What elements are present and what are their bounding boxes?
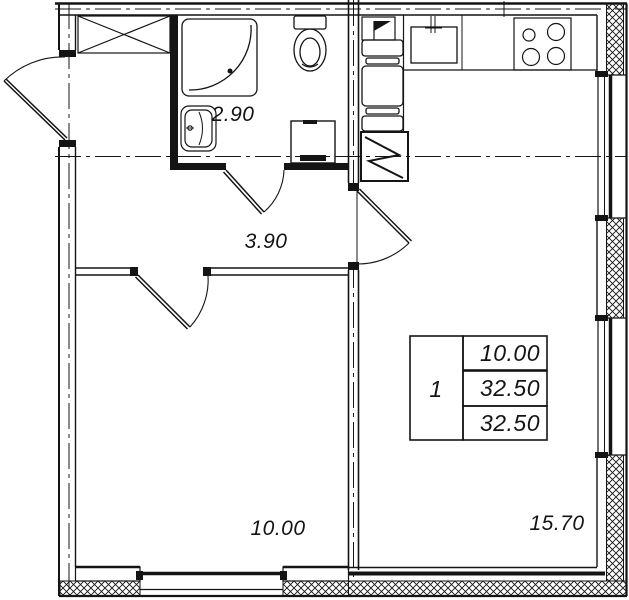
- window: [136, 571, 287, 590]
- hallway-area-label: 3.90: [245, 230, 288, 253]
- toilet-icon: [294, 16, 326, 71]
- floor-plan: 2.90 3.90 10.00 15.70 1 10.00 32.50 32.5…: [0, 0, 629, 600]
- axis-lines: [55, 0, 627, 596]
- bedroom-area-label: 10.00: [250, 517, 305, 540]
- window: [595, 71, 627, 221]
- exterior-walls: [55, 1, 627, 596]
- kitchen-counter: [404, 15, 598, 70]
- bottom-wall: [60, 567, 627, 596]
- table-row-value: 32.50: [480, 410, 540, 436]
- living-room-door: [357, 189, 412, 264]
- window: [595, 315, 627, 458]
- kitchen-sink-icon: [411, 16, 457, 63]
- interior-walls: [76, 0, 360, 570]
- apartment-number: 1: [429, 376, 442, 402]
- shower-tray-icon: [182, 19, 257, 96]
- bathroom-area-label: 2.90: [211, 103, 255, 126]
- wardrobe-icon: [78, 16, 170, 53]
- entry-door: [4, 57, 67, 140]
- water-heater-icon: [362, 15, 404, 131]
- bathroom-door: [224, 170, 285, 214]
- table-row-value: 32.50: [480, 375, 540, 401]
- bedroom-door: [136, 275, 209, 329]
- floor-plan-drawing: 2.90 3.90 10.00 15.70 1 10.00 32.50 32.5…: [0, 0, 629, 600]
- cooktop-icon: [514, 18, 571, 70]
- living-kitchen-area-label: 15.70: [529, 512, 584, 535]
- table-row-value: 10.00: [480, 340, 540, 366]
- right-wall: [595, 4, 627, 582]
